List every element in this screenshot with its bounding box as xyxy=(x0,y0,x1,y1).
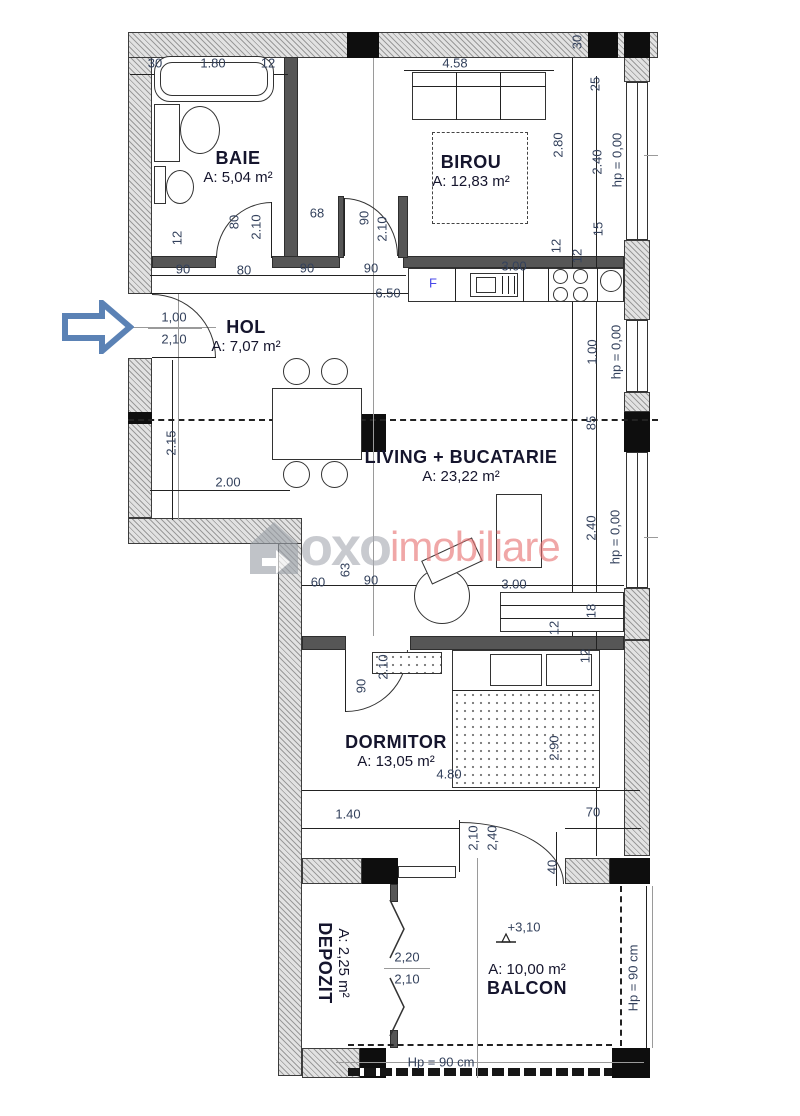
room-area: A: 5,04 m² xyxy=(203,169,272,186)
dimension-label: 12 xyxy=(547,621,562,635)
stove-burner xyxy=(573,287,588,302)
dimension-label: 30 xyxy=(570,35,585,49)
folding-door xyxy=(384,894,410,1042)
dimension-label: Hp = 90 cm xyxy=(408,1055,475,1070)
column xyxy=(610,858,650,884)
dimension-label: 12 xyxy=(549,239,564,253)
dimension-label: 2.80 xyxy=(551,132,566,157)
room-label: LIVING + BUCATARIEA: 23,22 m² xyxy=(365,447,558,485)
door-arc xyxy=(152,294,216,358)
dimension-label: hp = 0,00 xyxy=(609,325,624,380)
wall-segment xyxy=(302,858,362,884)
dimension-line xyxy=(302,828,460,829)
parapet-line xyxy=(620,886,622,1046)
toilet-tank xyxy=(154,166,166,204)
room-area: A: 7,07 m² xyxy=(211,338,280,355)
hp-level-line xyxy=(644,155,658,156)
parapet-wall xyxy=(348,1068,612,1076)
dimension-label: 30 xyxy=(148,56,162,71)
dimension-line xyxy=(302,790,640,791)
dimension-label: hp = 0,00 xyxy=(610,133,625,188)
sideboard xyxy=(500,592,624,632)
dimension-label: 2,10 xyxy=(466,825,481,850)
drainer-line xyxy=(508,276,509,294)
section-line xyxy=(128,419,658,421)
dimension-line xyxy=(404,70,554,71)
dimension-label: +3,10 xyxy=(508,920,541,935)
sofa xyxy=(412,72,546,120)
room-label: DORMITORA: 13,05 m² xyxy=(345,732,447,770)
room-area: A: 13,05 m² xyxy=(345,753,447,770)
door-arc xyxy=(344,198,398,256)
room-area: A: 10,00 m² xyxy=(487,961,567,978)
room-name: BALCON xyxy=(487,978,567,999)
stove-burner xyxy=(573,269,588,284)
dimension-label: 12 xyxy=(578,649,593,663)
dimension-label: 15 xyxy=(591,222,606,236)
dimension-line xyxy=(150,490,290,491)
wall-segment xyxy=(624,588,650,640)
dimension-label: 2.40 xyxy=(584,515,599,540)
dimension-label: 2.40 xyxy=(590,149,605,174)
dimension-label: 63 xyxy=(338,563,353,577)
dimension-line xyxy=(572,58,573,636)
entrance-arrow-icon xyxy=(62,300,134,354)
counter-division xyxy=(548,268,549,302)
wall-segment xyxy=(128,358,152,518)
parapet-line xyxy=(646,886,647,1048)
dimension-label: 40 xyxy=(545,860,560,874)
door-leaf xyxy=(344,198,345,256)
dimension-label: 2.90 xyxy=(547,735,562,760)
dimension-label: 68 xyxy=(310,206,324,221)
wall-segment xyxy=(565,858,610,884)
dimension-label: 2.15 xyxy=(164,430,179,455)
room-name: DEPOZIT xyxy=(314,922,335,1004)
dimension-label: 12 xyxy=(570,249,585,263)
dimension-label: 2.10 xyxy=(249,214,264,239)
dimension-label: 6.50 xyxy=(375,286,400,301)
column xyxy=(588,32,618,58)
floor-plan: oxo imobiliare 301.80124.5830252.802.40h… xyxy=(0,0,800,1116)
sofa-back-line xyxy=(412,86,546,87)
door-arc xyxy=(216,202,272,258)
dimension-label: 2,20 xyxy=(394,950,419,965)
column xyxy=(624,32,650,58)
parapet-line xyxy=(336,1062,644,1063)
drainer-line xyxy=(514,276,515,294)
dimension-label: hp = 0,00 xyxy=(608,510,623,565)
dimension-label: 12 xyxy=(261,56,275,71)
chair xyxy=(283,461,310,488)
dimension-label: 3.00 xyxy=(501,577,526,592)
sink xyxy=(180,106,220,154)
room-area: A: 12,83 m² xyxy=(432,173,510,190)
sofa-cushion-line xyxy=(500,72,501,120)
dimension-label: 90 xyxy=(300,261,314,276)
dimension-label: 80 xyxy=(237,263,251,278)
dimension-label: 2.10 xyxy=(375,216,390,241)
dimension-label: F xyxy=(429,276,437,291)
column xyxy=(128,412,152,424)
window xyxy=(626,82,648,240)
dimension-label: 18 xyxy=(584,604,599,618)
wall-segment xyxy=(128,518,302,544)
column xyxy=(624,412,650,452)
partition-wall xyxy=(302,636,346,650)
door-leaf xyxy=(459,820,460,872)
dimension-label: 90 xyxy=(364,573,378,588)
partition-wall xyxy=(284,57,298,258)
dimension-label: 90 xyxy=(354,679,369,693)
parapet-line xyxy=(348,1044,612,1046)
room-label: BAIEA: 5,04 m² xyxy=(203,148,272,186)
dimension-label: 3.00 xyxy=(501,259,526,274)
room-area: A: 23,22 m² xyxy=(365,468,558,485)
axis-line xyxy=(373,58,374,636)
dining-table xyxy=(272,388,362,460)
dimension-label: 12 xyxy=(170,231,185,245)
partition-wall xyxy=(398,196,408,258)
column xyxy=(362,858,398,884)
parapet-line xyxy=(652,886,653,1048)
window-sill xyxy=(398,866,456,878)
armchair xyxy=(496,494,542,568)
dimension-label: 4.80 xyxy=(436,767,461,782)
dimension-label: 90 xyxy=(176,262,190,277)
room-name: BIROU xyxy=(432,152,510,173)
stove-burner xyxy=(553,269,568,284)
counter-division xyxy=(597,268,598,302)
drainer-line xyxy=(502,276,503,294)
wall-segment xyxy=(624,392,650,412)
dimension-label: 85 xyxy=(584,416,599,430)
window xyxy=(626,452,648,588)
room-name: BAIE xyxy=(203,148,272,169)
dimension-label: 2.10 xyxy=(376,654,391,679)
dimension-label: 70 xyxy=(586,805,600,820)
wall-segment xyxy=(624,640,650,856)
kitchen-sink-bowl xyxy=(476,277,496,293)
room-label: HOLA: 7,07 m² xyxy=(211,317,280,355)
room-name: HOL xyxy=(211,317,280,338)
dimension-label: 25 xyxy=(588,77,603,91)
stove-burner xyxy=(553,287,568,302)
chair xyxy=(321,461,348,488)
room-name: DORMITOR xyxy=(345,732,447,753)
column xyxy=(612,1048,650,1078)
hp-level-line xyxy=(644,537,658,538)
door-leaf xyxy=(345,650,346,712)
window xyxy=(626,320,648,392)
room-label: A: 2,25 m²DEPOZIT xyxy=(314,922,352,1004)
room-label: A: 10,00 m²BALCON xyxy=(487,961,567,999)
dimension-label: 4.58 xyxy=(442,56,467,71)
dimension-label: 1.00 xyxy=(585,339,600,364)
dimension-label: 1.80 xyxy=(200,56,225,71)
toilet xyxy=(166,170,194,204)
appliance xyxy=(600,270,622,292)
chair xyxy=(321,358,348,385)
dimension-label: 2,10 xyxy=(394,972,419,987)
wall-segment xyxy=(278,543,302,1076)
dimension-line xyxy=(565,828,641,829)
dimension-label: 2,40 xyxy=(485,825,500,850)
dimension-label: 1,00 xyxy=(161,310,186,325)
room-area: A: 2,25 m² xyxy=(335,922,352,1004)
dimension-label: Hp = 90 cm xyxy=(626,945,641,1012)
bed-line xyxy=(452,690,600,691)
wall-segment xyxy=(624,240,650,320)
wall-segment xyxy=(128,57,152,294)
dimension-label: 90 xyxy=(357,211,372,225)
dimension-label: 2.00 xyxy=(215,475,240,490)
door-leaf xyxy=(152,357,216,358)
chair xyxy=(283,358,310,385)
sideboard-line xyxy=(500,618,624,619)
dimension-label: 80 xyxy=(227,215,242,229)
column xyxy=(347,32,379,58)
pillow xyxy=(490,654,542,686)
wall-segment xyxy=(624,57,650,82)
axis-line xyxy=(477,858,478,1078)
dimension-label: 1.40 xyxy=(335,807,360,822)
door-leaf xyxy=(271,202,272,258)
dimension-label: 60 xyxy=(311,575,325,590)
sofa-cushion-line xyxy=(456,72,457,120)
dimension-label: 90 xyxy=(364,261,378,276)
room-label: BIROUA: 12,83 m² xyxy=(432,152,510,190)
counter-division xyxy=(455,268,456,302)
sideboard-line xyxy=(500,605,624,606)
room-name: LIVING + BUCATARIE xyxy=(365,447,558,468)
dimension-label: 2,10 xyxy=(161,332,186,347)
bath-counter xyxy=(154,104,180,162)
